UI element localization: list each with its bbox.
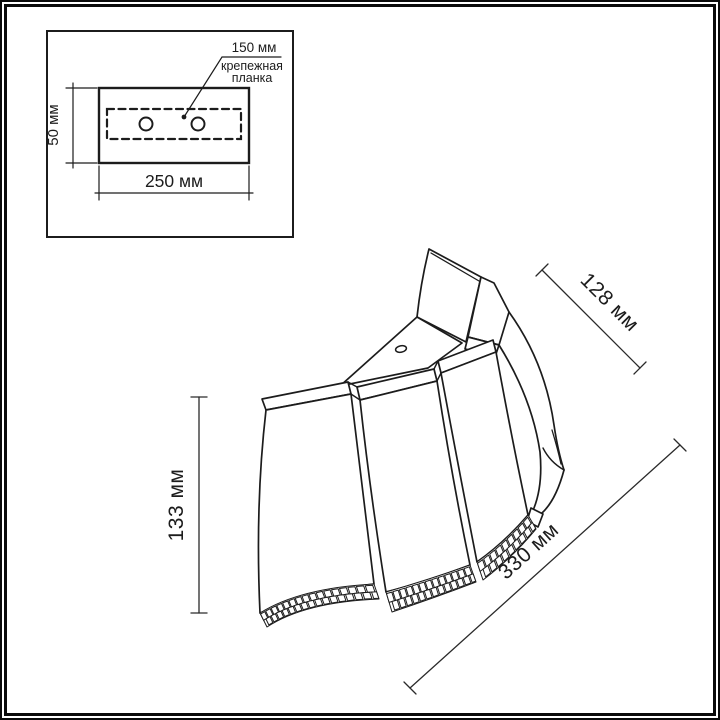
hole-spacing-label: 150 мм [232, 40, 277, 55]
lower-right-curve [542, 470, 564, 513]
crystal-facet [346, 594, 355, 601]
panel-1 [258, 394, 374, 613]
plate-width-label: 250 мм [145, 171, 203, 191]
diagram-canvas: 150 мм крепежная планка 50 мм 250 мм [0, 0, 720, 720]
crystal-facet [356, 586, 366, 593]
left-height-label: 133 мм [165, 469, 188, 542]
technical-drawing: 150 мм крепежная планка 50 мм 250 мм [0, 0, 720, 720]
plate-height-label: 50 мм [45, 104, 62, 145]
crystal-facet [354, 593, 363, 600]
outer-curve [509, 312, 564, 470]
top-depth-label: 128 мм [576, 269, 644, 337]
dimension-133mm [191, 397, 207, 613]
flare-inner-line [552, 430, 561, 464]
crystal-facet [363, 592, 372, 599]
crystal-facet [365, 585, 375, 592]
bracket-note-line2: планка [232, 71, 273, 85]
